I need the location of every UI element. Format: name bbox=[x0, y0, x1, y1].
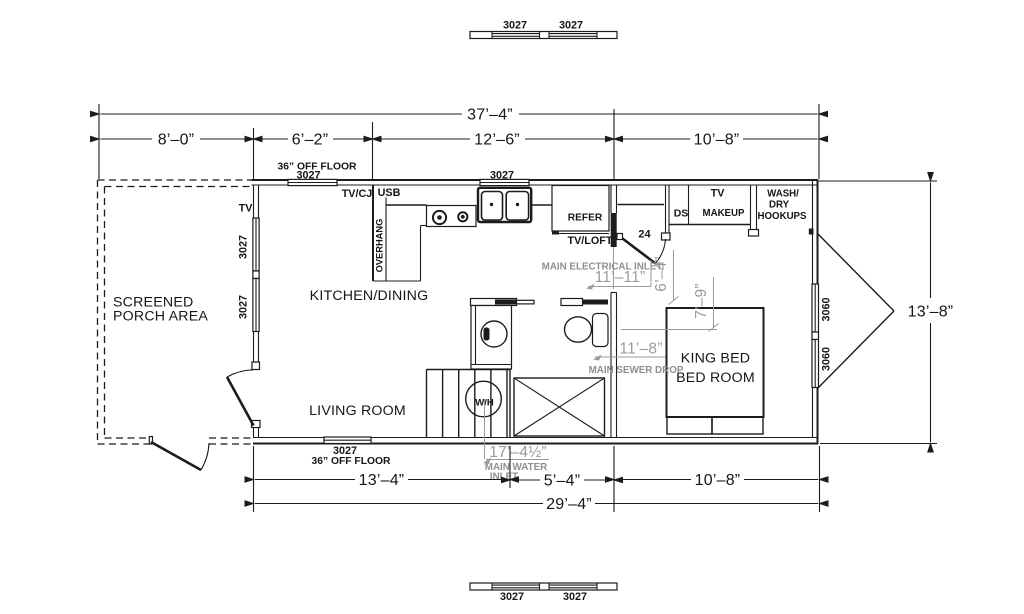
svg-text:BED ROOM: BED ROOM bbox=[676, 370, 755, 386]
svg-text:3027: 3027 bbox=[563, 591, 587, 603]
svg-text:3027: 3027 bbox=[559, 20, 583, 32]
svg-text:3027: 3027 bbox=[503, 20, 527, 32]
svg-text:PORCH AREA: PORCH AREA bbox=[113, 309, 208, 325]
svg-text:TV/CJ: TV/CJ bbox=[342, 188, 373, 200]
svg-text:12’–6”: 12’–6” bbox=[474, 132, 520, 149]
svg-text:8’–0”: 8’–0” bbox=[158, 132, 195, 149]
svg-text:7’–9”: 7’–9” bbox=[693, 283, 710, 318]
svg-text:36” OFF FLOOR: 36” OFF FLOOR bbox=[278, 162, 358, 173]
svg-text:11’–8”: 11’–8” bbox=[619, 341, 662, 358]
svg-text:KING BED: KING BED bbox=[681, 351, 750, 367]
svg-text:TV: TV bbox=[239, 203, 254, 215]
svg-text:WASH/: WASH/ bbox=[767, 189, 799, 200]
svg-text:5’–4”: 5’–4” bbox=[544, 473, 581, 490]
svg-text:REFER: REFER bbox=[568, 213, 603, 224]
svg-text:13’–4”: 13’–4” bbox=[359, 472, 405, 489]
svg-text:10’–8”: 10’–8” bbox=[695, 472, 741, 489]
svg-text:36” OFF FLOOR: 36” OFF FLOOR bbox=[312, 456, 392, 467]
svg-text:37’–4”: 37’–4” bbox=[467, 107, 513, 124]
svg-text:LIVING ROOM: LIVING ROOM bbox=[309, 403, 406, 419]
svg-text:29’–4”: 29’–4” bbox=[546, 496, 592, 513]
svg-text:INLET: INLET bbox=[490, 472, 518, 483]
svg-text:24: 24 bbox=[638, 229, 651, 241]
svg-text:KITCHEN/DINING: KITCHEN/DINING bbox=[310, 288, 429, 304]
svg-text:3027: 3027 bbox=[238, 235, 250, 259]
svg-text:DS: DS bbox=[674, 208, 689, 220]
svg-text:3027: 3027 bbox=[490, 170, 514, 182]
svg-text:OVERHANG: OVERHANG bbox=[375, 219, 385, 273]
svg-text:TV: TV bbox=[711, 188, 726, 200]
svg-text:3027: 3027 bbox=[238, 295, 250, 319]
svg-text:USB: USB bbox=[378, 187, 401, 199]
svg-text:3060: 3060 bbox=[821, 297, 833, 321]
svg-text:DRY: DRY bbox=[769, 200, 790, 211]
svg-text:3060: 3060 bbox=[821, 347, 833, 371]
svg-text:MAKEUP: MAKEUP bbox=[703, 208, 746, 219]
svg-text:6’–4”: 6’–4” bbox=[653, 256, 670, 291]
svg-text:3027: 3027 bbox=[500, 591, 524, 603]
svg-text:HOOKUPS: HOOKUPS bbox=[758, 211, 808, 222]
svg-text:11’–11”: 11’–11” bbox=[595, 269, 646, 286]
svg-text:10’–8”: 10’–8” bbox=[694, 132, 740, 149]
svg-text:6’–2”: 6’–2” bbox=[292, 132, 329, 149]
svg-text:TV/LOFT: TV/LOFT bbox=[568, 235, 613, 247]
svg-text:MAIN SEWER DROP: MAIN SEWER DROP bbox=[589, 365, 684, 376]
svg-text:13’–8”: 13’–8” bbox=[908, 304, 954, 321]
svg-text:17’–4½”: 17’–4½” bbox=[489, 444, 546, 461]
